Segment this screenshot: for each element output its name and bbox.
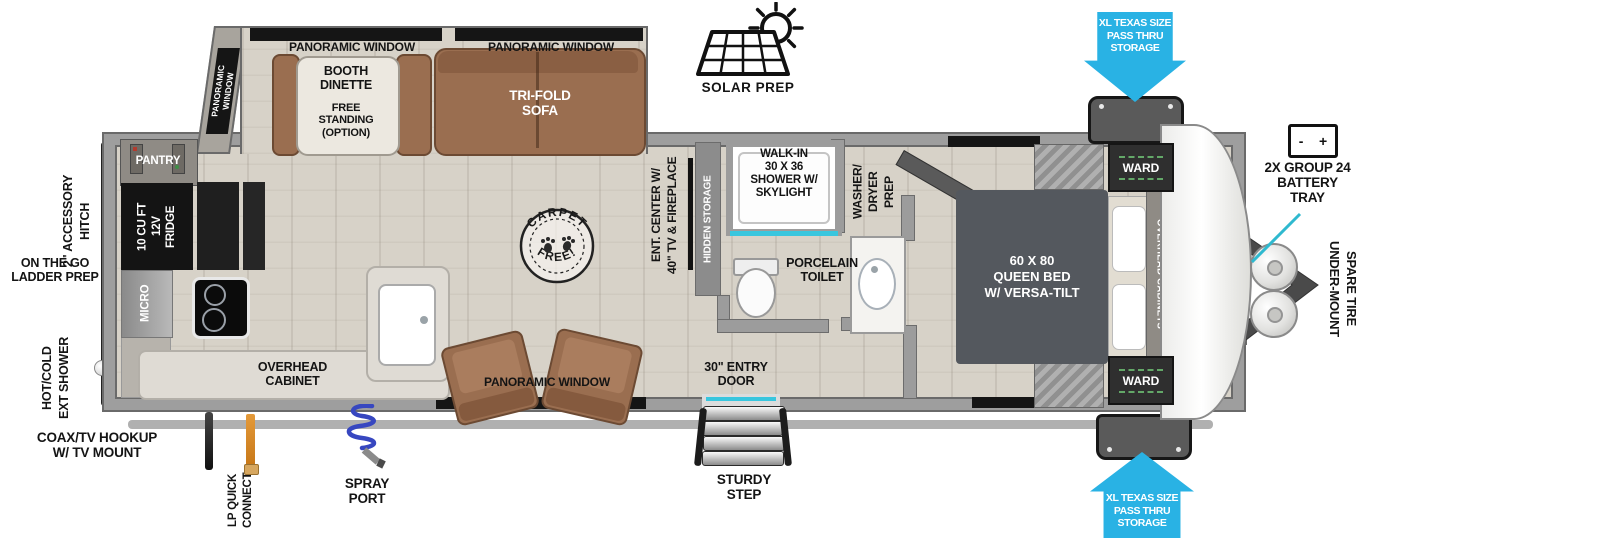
- propane-tank-2: [1250, 290, 1298, 338]
- pass-thru-top-label: XL TEXAS SIZE PASS THRU STORAGE: [1084, 12, 1186, 55]
- ground-line: [128, 420, 1213, 429]
- overhead-cabinet-label: OVERHEAD CABINET: [230, 360, 355, 388]
- queen-bed-label: 60 X 80 QUEEN BED W/ VERSA-TILT: [984, 253, 1079, 302]
- pantry-label: PANTRY: [120, 152, 196, 170]
- ext-shower-label: HOT/COLD EXT SHOWER: [36, 316, 76, 440]
- ward-bottom-label: WARD: [1119, 369, 1164, 393]
- pass-thru-arrow-bottom: XL TEXAS SIZE PASS THRU STORAGE: [1090, 452, 1194, 538]
- booth-dinette-option-label: FREE STANDING (OPTION): [300, 102, 392, 139]
- battery-plus: +: [1319, 133, 1327, 149]
- battery-tray-label: 2X GROUP 24 BATTERY TRAY: [1250, 160, 1365, 205]
- slideout-side-window: PANORAMIC WINDOW: [206, 48, 240, 134]
- panoramic-window-top-left-label: PANORAMIC WINDOW: [262, 41, 442, 54]
- washer-dryer-label: WASHER/ DRYER PREP: [848, 138, 900, 246]
- cooktop-burner-1: [204, 284, 226, 306]
- ward-top: WARD: [1108, 143, 1174, 192]
- kitchen-counter-dark-2: [243, 182, 265, 270]
- kitchen-sink: [378, 284, 436, 366]
- kitchen-faucet: [420, 316, 428, 324]
- panoramic-window-bottom-label: PANORAMIC WINDOW: [452, 376, 642, 389]
- entry-steps: [700, 406, 786, 466]
- panoramic-window-side-label: PANORAMIC WINDOW: [209, 65, 237, 117]
- trifold-sofa-label: TRI-FOLD SOFA: [495, 88, 585, 118]
- ward-top-label: WARD: [1119, 156, 1164, 180]
- booth-dinette-label: BOOTH DINETTE: [300, 64, 392, 92]
- nightstand-bottom: [1034, 362, 1104, 408]
- carpet-free-stamp: CARPET FREE!: [512, 204, 602, 290]
- entry-door-line: [706, 397, 776, 401]
- bath-wall-bottom: [718, 320, 828, 332]
- pillow-bottom: [1112, 284, 1146, 350]
- fridge-label: 10 CU FT 12V FRIDGE: [121, 183, 193, 270]
- shower-label: WALK-IN 30 X 36 SHOWER W/ SKYLIGHT: [722, 148, 846, 200]
- booth-bench-right: [396, 54, 432, 156]
- bath-faucet: [871, 266, 878, 273]
- pass-thru-bottom-label: XL TEXAS SIZE PASS THRU STORAGE: [1090, 452, 1194, 530]
- queen-bed: 60 X 80 QUEEN BED W/ VERSA-TILT: [956, 190, 1108, 364]
- bedroom-wall-lower: [904, 326, 916, 398]
- pass-thru-arrow-top: XL TEXAS SIZE PASS THRU STORAGE: [1084, 12, 1186, 102]
- entry-door-label: 30" ENTRY DOOR: [688, 360, 784, 388]
- bedroom-wall-upper: [902, 196, 914, 240]
- nightstand-top: [1034, 144, 1104, 190]
- bedroom-top-window: [948, 136, 1040, 147]
- spare-tire-label: UNDER-MOUNT SPARE TIRE: [1320, 218, 1364, 360]
- pantry-dot-red: [133, 147, 137, 151]
- lp-quick-connect-label: LP QUICK CONNECT: [220, 452, 262, 548]
- battery-pointer-line: [1246, 210, 1306, 266]
- battery-icon: - +: [1288, 124, 1338, 158]
- ladder-prep-label: ON THE GO LADDER PREP: [0, 256, 110, 284]
- coax-hookup-label: COAX/TV HOOKUP W/ TV MOUNT: [2, 430, 192, 460]
- bedroom-bottom-window: [972, 397, 1034, 408]
- solar-prep-label: SOLAR PREP: [688, 80, 808, 95]
- toilet-label: PORCELAIN TOILET: [762, 256, 882, 284]
- pillow-top: [1112, 206, 1146, 272]
- micro-label: MICRO: [121, 270, 171, 336]
- spray-port-hose: [340, 404, 390, 472]
- coax-mount-graphic: [205, 412, 213, 470]
- battery-minus: -: [1299, 133, 1304, 149]
- tv-bar: [688, 158, 693, 270]
- spray-port-label: SPRAY PORT: [322, 476, 412, 506]
- ward-bottom: WARD: [1108, 356, 1174, 405]
- pass-thru-door-bottom: [1096, 414, 1192, 460]
- panoramic-window-top-right-label: PANORAMIC WINDOW: [462, 41, 640, 54]
- hidden-storage-label: HIDDEN STORAGE: [696, 143, 720, 295]
- floorplan-stage: PANORAMIC WINDOW PANORAMIC WINDOW PANORA…: [0, 0, 1600, 551]
- kitchen-counter-dark-1: [197, 182, 239, 270]
- ent-center-label: ENT. CENTER W/ 40" TV & FIREPLACE: [640, 145, 688, 285]
- cooktop-burner-2: [202, 308, 226, 332]
- solar-prep-icon: [692, 2, 804, 80]
- sturdy-step-label: STURDY STEP: [702, 472, 786, 502]
- shower-threshold: [730, 231, 838, 236]
